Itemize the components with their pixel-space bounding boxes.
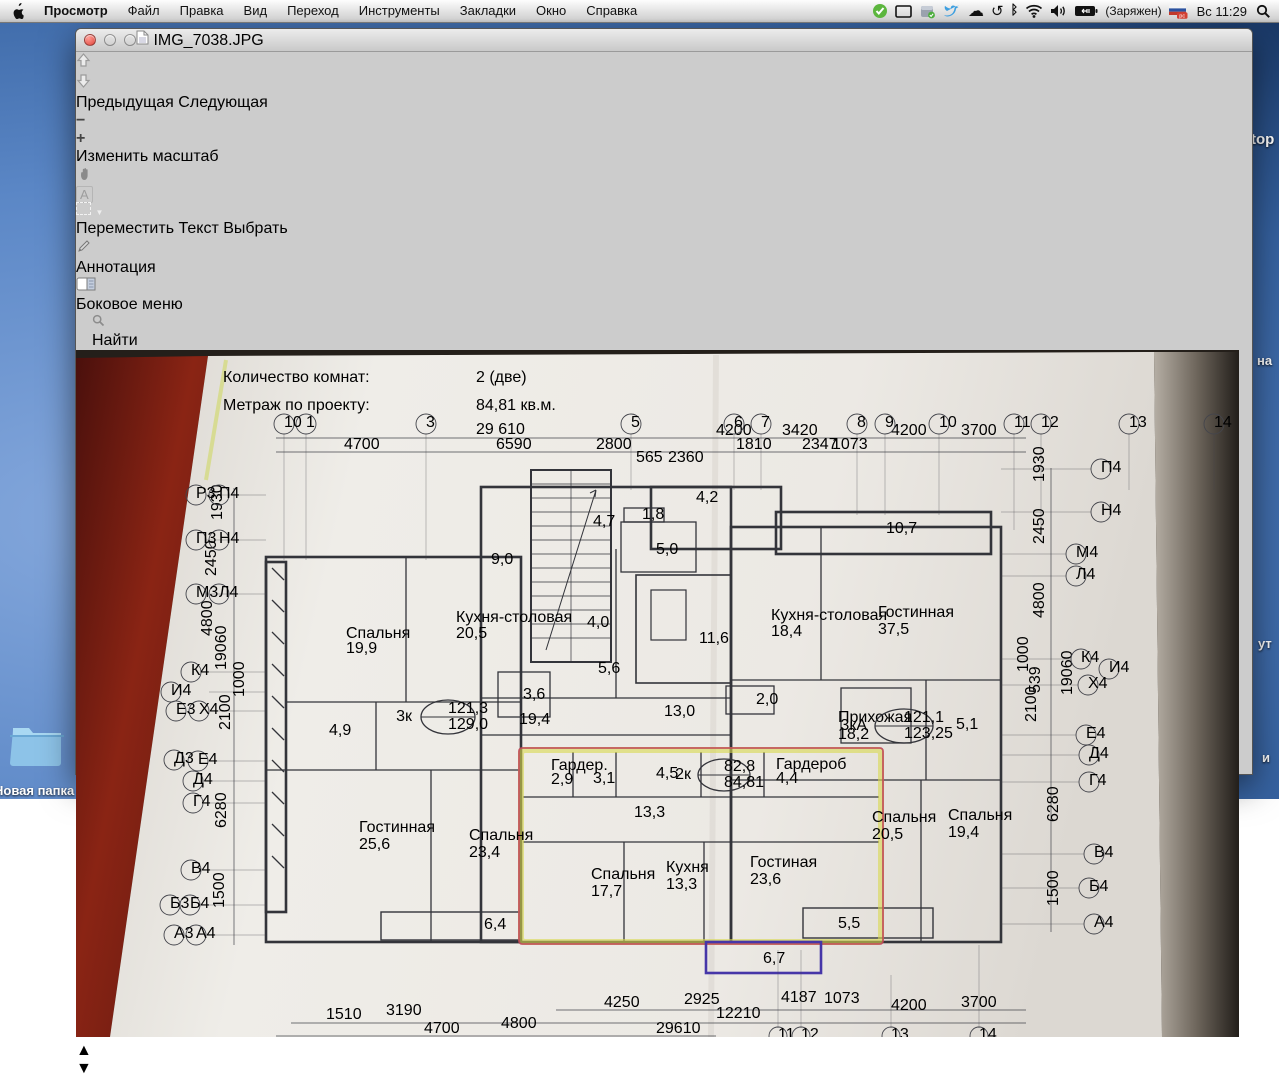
svg-text:2800: 2800 bbox=[596, 436, 632, 453]
next-page-button[interactable] bbox=[76, 73, 159, 94]
sidebar-label: Боковое меню bbox=[76, 296, 183, 313]
zoom-button[interactable] bbox=[124, 34, 136, 46]
toolbar: Предыдущая Следующая − + Изменить масшта… bbox=[76, 52, 1252, 350]
chevron-down-icon: ▼ bbox=[95, 208, 103, 217]
svg-text:2100: 2100 bbox=[1023, 686, 1040, 722]
svg-text:4,0: 4,0 bbox=[587, 614, 609, 631]
minimize-button[interactable] bbox=[104, 34, 116, 46]
svg-text:Д3: Д3 bbox=[174, 750, 194, 767]
spotlight-icon[interactable] bbox=[1256, 0, 1271, 22]
text-label: Текст bbox=[178, 220, 218, 237]
move-label: Переместить bbox=[76, 220, 174, 237]
svg-text:К4: К4 bbox=[1081, 649, 1099, 666]
svg-text:121,3: 121,3 bbox=[448, 700, 488, 717]
svg-text:1810: 1810 bbox=[736, 436, 772, 453]
svg-text:5: 5 bbox=[631, 414, 640, 431]
desktop-icon-label[interactable]: ут bbox=[1258, 636, 1272, 651]
svg-text:Г4: Г4 bbox=[193, 793, 211, 810]
svg-text:6,4: 6,4 bbox=[484, 916, 506, 933]
svg-text:13: 13 bbox=[1129, 414, 1147, 431]
photo-paper-edge bbox=[1154, 352, 1239, 1037]
svg-text:7: 7 bbox=[761, 414, 770, 431]
svg-text:И4: И4 bbox=[1109, 659, 1130, 676]
svg-text:4187: 4187 bbox=[781, 989, 817, 1006]
svg-text:17,7: 17,7 bbox=[591, 883, 622, 900]
svg-text:1000: 1000 bbox=[231, 661, 248, 697]
svg-text:3700: 3700 bbox=[961, 994, 997, 1011]
svg-text:Х4: Х4 bbox=[199, 701, 219, 718]
svg-text:20,5: 20,5 bbox=[872, 826, 903, 843]
status-wifi-icon[interactable] bbox=[1025, 0, 1043, 22]
svg-text:3: 3 bbox=[426, 414, 435, 431]
svg-text:Р3: Р3 bbox=[196, 485, 216, 502]
svg-text:3кА: 3кА bbox=[840, 717, 867, 734]
preview-window: IMG_7038.JPG Предыдущая Следующая − + bbox=[75, 28, 1253, 775]
zoom-in-button[interactable]: + bbox=[76, 130, 125, 148]
status-twitter-icon[interactable] bbox=[943, 0, 961, 22]
svg-text:М3: М3 bbox=[196, 584, 218, 601]
window-title: IMG_7038.JPG bbox=[153, 32, 263, 49]
svg-text:Спальня: Спальня bbox=[948, 807, 1012, 824]
svg-text:И4: И4 bbox=[171, 682, 192, 699]
svg-text:5,6: 5,6 bbox=[598, 660, 620, 677]
svg-text:5,5: 5,5 bbox=[838, 915, 860, 932]
svg-text:Б4: Б4 bbox=[190, 895, 210, 912]
rooms-count-value: 2 (две) bbox=[476, 369, 527, 386]
status-cloud-icon[interactable]: ☁ bbox=[968, 0, 984, 22]
svg-text:4700: 4700 bbox=[344, 436, 380, 453]
svg-text:П3: П3 bbox=[196, 530, 217, 547]
svg-text:4,2: 4,2 bbox=[696, 489, 718, 506]
svg-text:4,9: 4,9 bbox=[329, 722, 351, 739]
zoom-out-button[interactable]: − bbox=[76, 112, 125, 130]
svg-text:13,3: 13,3 bbox=[666, 876, 697, 893]
svg-text:Б4: Б4 bbox=[1089, 878, 1109, 895]
status-window-icon[interactable] bbox=[895, 0, 912, 22]
svg-text:13: 13 bbox=[891, 1026, 909, 1037]
find-label: Найти bbox=[92, 332, 138, 349]
svg-text:37,5: 37,5 bbox=[878, 621, 909, 638]
menu-bar: Просмотр Файл Правка Вид Переход Инструм… bbox=[0, 0, 1279, 23]
svg-text:2450: 2450 bbox=[1031, 508, 1048, 544]
menu-edit[interactable]: Правка bbox=[170, 0, 234, 22]
svg-text:Гостинная: Гостинная bbox=[878, 604, 954, 621]
svg-text:А4: А4 bbox=[1094, 914, 1114, 931]
svg-text:1500: 1500 bbox=[1045, 870, 1062, 906]
menu-go[interactable]: Переход bbox=[277, 0, 349, 22]
svg-text:Спальня: Спальня bbox=[591, 866, 655, 883]
svg-text:2,0: 2,0 bbox=[756, 691, 778, 708]
title-bar[interactable]: IMG_7038.JPG bbox=[76, 29, 1252, 52]
svg-text:14: 14 bbox=[1214, 414, 1232, 431]
svg-text:А3: А3 bbox=[174, 925, 194, 942]
svg-text:2360: 2360 bbox=[668, 449, 704, 466]
svg-text:2925: 2925 bbox=[684, 991, 720, 1008]
svg-text:12: 12 bbox=[1041, 414, 1059, 431]
svg-text:10: 10 bbox=[939, 414, 957, 431]
svg-text:19060: 19060 bbox=[213, 625, 230, 670]
svg-text:Н4: Н4 bbox=[219, 530, 240, 547]
svg-text:1073: 1073 bbox=[824, 990, 860, 1007]
svg-text:6280: 6280 bbox=[213, 792, 230, 828]
svg-text:23,6: 23,6 bbox=[750, 871, 781, 888]
svg-text:А4: А4 bbox=[196, 925, 216, 942]
svg-text:Л4: Л4 bbox=[1076, 566, 1096, 583]
svg-text:82,8: 82,8 bbox=[724, 758, 755, 775]
svg-text:11: 11 bbox=[1014, 414, 1031, 431]
zoom-label: Изменить масштаб bbox=[76, 148, 219, 165]
svg-text:1: 1 bbox=[306, 414, 315, 431]
svg-text:4200: 4200 bbox=[891, 422, 927, 439]
svg-text:3к: 3к bbox=[396, 708, 413, 725]
previous-label: Предыдущая bbox=[76, 94, 174, 111]
svg-text:2100: 2100 bbox=[217, 694, 234, 730]
menu-app[interactable]: Просмотр bbox=[34, 0, 118, 22]
svg-text:П4: П4 bbox=[1101, 459, 1122, 476]
desktop-icon-label[interactable]: на bbox=[1257, 353, 1272, 368]
svg-text:9,0: 9,0 bbox=[491, 551, 513, 568]
svg-text:5,1: 5,1 bbox=[956, 716, 978, 733]
svg-text:12210: 12210 bbox=[716, 1005, 761, 1022]
svg-text:129,0: 129,0 bbox=[448, 716, 488, 733]
folder-icon[interactable] bbox=[10, 722, 64, 766]
svg-text:23,4: 23,4 bbox=[469, 844, 500, 861]
menu-window[interactable]: Окно bbox=[526, 0, 576, 22]
svg-text:4800: 4800 bbox=[501, 1015, 537, 1032]
menu-clock[interactable]: Вс 11:29 bbox=[1195, 4, 1249, 19]
menu-tools[interactable]: Инструменты bbox=[349, 0, 450, 22]
svg-text:Кухня-столовая: Кухня-столовая bbox=[771, 607, 887, 624]
svg-text:4200: 4200 bbox=[891, 997, 927, 1014]
svg-text:6: 6 bbox=[734, 414, 743, 431]
status-bluetooth-icon[interactable]: ᛒ bbox=[1011, 0, 1019, 22]
svg-text:1073: 1073 bbox=[832, 436, 868, 453]
svg-text:10,7: 10,7 bbox=[886, 520, 917, 537]
svg-text:2,9: 2,9 bbox=[551, 771, 573, 788]
svg-text:19,4: 19,4 bbox=[519, 711, 550, 728]
svg-text:Г4: Г4 bbox=[1089, 772, 1107, 789]
svg-text:11: 11 bbox=[778, 1026, 795, 1037]
svg-text:Гостиная: Гостиная bbox=[750, 854, 817, 871]
svg-text:5,0: 5,0 bbox=[656, 541, 678, 558]
annotate-button[interactable] bbox=[76, 238, 138, 259]
svg-text:1,8: 1,8 bbox=[642, 506, 664, 523]
svg-text:19,4: 19,4 bbox=[948, 824, 979, 841]
svg-text:8: 8 bbox=[857, 414, 866, 431]
svg-text:Д4: Д4 bbox=[1089, 745, 1109, 762]
status-check-badge-icon[interactable] bbox=[872, 0, 888, 22]
project-area-label: Метраж по проекту: bbox=[223, 397, 370, 414]
document-view[interactable]: Количество комнат: 2 (две) Метраж по про… bbox=[76, 350, 1252, 1078]
svg-text:Н4: Н4 bbox=[1101, 502, 1122, 519]
text-tool-button[interactable]: A bbox=[76, 187, 164, 202]
svg-text:10: 10 bbox=[284, 414, 302, 431]
svg-text:20,5: 20,5 bbox=[456, 625, 487, 642]
svg-text:3700: 3700 bbox=[961, 422, 997, 439]
svg-text:121,1: 121,1 bbox=[904, 709, 944, 726]
svg-text:Кухня-столовая: Кухня-столовая bbox=[456, 609, 572, 626]
apple-menu-icon[interactable] bbox=[0, 3, 34, 19]
rooms-count-label: Количество комнат: bbox=[223, 369, 370, 386]
desktop-icon-label[interactable]: и bbox=[1262, 750, 1270, 765]
input-language-flag-icon[interactable]: рс bbox=[1169, 0, 1188, 22]
svg-text:3190: 3190 bbox=[386, 1002, 422, 1019]
search-input[interactable] bbox=[92, 314, 1252, 332]
svg-text:Д4: Д4 bbox=[193, 771, 213, 788]
battery-status-text[interactable]: (Заряжен) bbox=[1105, 4, 1161, 18]
previous-page-button[interactable] bbox=[76, 52, 159, 73]
selection-icon bbox=[76, 202, 91, 215]
annotate-label: Аннотация bbox=[76, 259, 156, 276]
svg-text:18,4: 18,4 bbox=[771, 623, 802, 640]
close-button[interactable] bbox=[84, 34, 96, 46]
status-battery-icon[interactable] bbox=[1074, 0, 1098, 22]
svg-text:14: 14 bbox=[979, 1026, 997, 1037]
svg-text:25,6: 25,6 bbox=[359, 836, 390, 853]
document-icon bbox=[136, 30, 149, 45]
select-tool-button[interactable]: ▼ bbox=[76, 202, 164, 220]
svg-text:4,7: 4,7 bbox=[593, 513, 615, 530]
svg-text:13,3: 13,3 bbox=[634, 804, 665, 821]
floorplan-image: Количество комнат: 2 (две) Метраж по про… bbox=[76, 350, 1239, 1037]
search-icon bbox=[92, 314, 105, 327]
svg-text:19060: 19060 bbox=[1059, 650, 1076, 695]
svg-text:29610: 29610 bbox=[656, 1020, 701, 1037]
project-area-value: 84,81 кв.м. bbox=[476, 397, 556, 414]
svg-text:рс: рс bbox=[1179, 13, 1185, 19]
desktop-icon-label[interactable]: top bbox=[1251, 131, 1274, 148]
menu-bookmarks[interactable]: Закладки bbox=[450, 0, 526, 22]
svg-text:1510: 1510 bbox=[326, 1006, 362, 1023]
svg-text:Л4: Л4 bbox=[219, 584, 239, 601]
svg-text:2к: 2к bbox=[675, 766, 692, 783]
svg-text:4800: 4800 bbox=[1031, 582, 1048, 618]
svg-text:9: 9 bbox=[885, 414, 894, 431]
svg-text:565: 565 bbox=[636, 449, 663, 466]
svg-text:13,0: 13,0 bbox=[664, 703, 695, 720]
svg-text:Е3: Е3 bbox=[176, 701, 196, 718]
svg-text:Спальня: Спальня bbox=[872, 809, 936, 826]
svg-text:М4: М4 bbox=[1076, 544, 1098, 561]
svg-text:84,81: 84,81 bbox=[724, 774, 764, 791]
sidebar-button[interactable] bbox=[76, 277, 132, 296]
svg-text:6280: 6280 bbox=[1045, 786, 1062, 822]
svg-text:Х4: Х4 bbox=[1088, 675, 1108, 692]
select-label: Выбрать bbox=[223, 220, 287, 237]
svg-text:6,7: 6,7 bbox=[763, 950, 785, 967]
svg-text:Е4: Е4 bbox=[1086, 725, 1106, 742]
scroll-up-arrow[interactable]: ▲ bbox=[76, 1042, 1252, 1060]
menu-view[interactable]: Вид bbox=[234, 0, 278, 22]
svg-text:19,9: 19,9 bbox=[346, 640, 377, 657]
svg-text:4700: 4700 bbox=[424, 1020, 460, 1037]
status-volume-icon[interactable] bbox=[1050, 0, 1067, 22]
menu-file[interactable]: Файл bbox=[118, 0, 170, 22]
svg-text:П4: П4 bbox=[219, 485, 240, 502]
svg-text:3,1: 3,1 bbox=[593, 770, 615, 787]
svg-text:Спальня: Спальня bbox=[469, 827, 533, 844]
status-timemachine-icon[interactable]: ↺ bbox=[991, 0, 1004, 22]
svg-text:1500: 1500 bbox=[211, 872, 228, 908]
svg-text:4,4: 4,4 bbox=[776, 770, 798, 787]
next-label: Следующая bbox=[178, 94, 268, 111]
svg-text:Б3: Б3 bbox=[170, 895, 190, 912]
svg-text:6590: 6590 bbox=[496, 436, 532, 453]
svg-text:Е4: Е4 bbox=[198, 751, 218, 768]
svg-text:3,6: 3,6 bbox=[523, 686, 545, 703]
folder-label[interactable]: Новая папка 2 bbox=[0, 783, 85, 798]
svg-text:1930: 1930 bbox=[1031, 446, 1048, 482]
svg-text:12: 12 bbox=[801, 1026, 819, 1037]
svg-text:К4: К4 bbox=[191, 662, 209, 679]
menu-help[interactable]: Справка bbox=[576, 0, 647, 22]
svg-text:Кухня: Кухня bbox=[666, 859, 709, 876]
status-dropbox-icon[interactable] bbox=[919, 0, 936, 22]
svg-text:В4: В4 bbox=[1094, 844, 1114, 861]
vertical-scrollbar[interactable]: ▲ ▼ bbox=[76, 1042, 1252, 1078]
svg-text:Гостинная: Гостинная bbox=[359, 819, 435, 836]
move-tool-button[interactable] bbox=[76, 166, 164, 187]
svg-text:11,6: 11,6 bbox=[699, 630, 729, 647]
svg-text:4250: 4250 bbox=[604, 994, 640, 1011]
scroll-down-arrow[interactable]: ▼ bbox=[76, 1060, 1252, 1078]
svg-text:123,25: 123,25 bbox=[904, 725, 953, 742]
svg-text:В4: В4 bbox=[191, 860, 211, 877]
